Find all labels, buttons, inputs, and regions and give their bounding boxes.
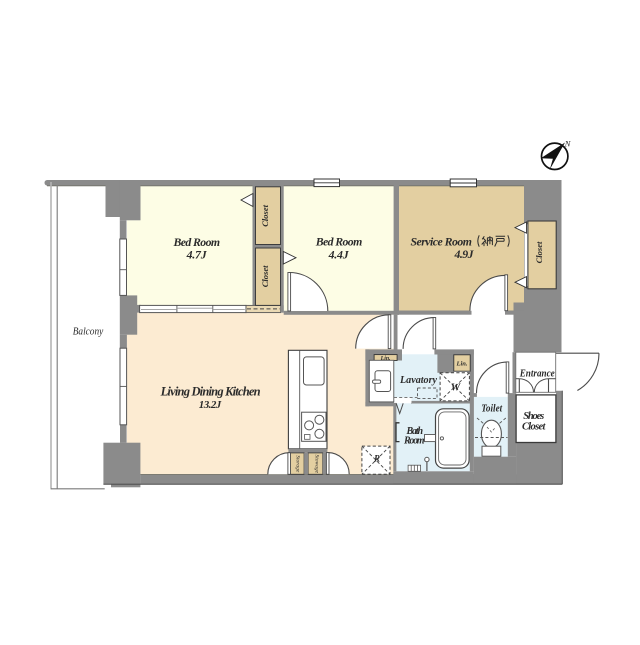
svg-text:4.4J: 4.4J <box>328 247 350 261</box>
svg-text:4.7J: 4.7J <box>186 248 208 262</box>
svg-text:R: R <box>373 454 380 464</box>
svg-text:Closet: Closet <box>260 204 270 226</box>
svg-text:4.9J: 4.9J <box>454 247 475 261</box>
svg-text:Room: Room <box>403 436 425 447</box>
svg-text:Closet: Closet <box>522 421 547 432</box>
svg-text:Lavatory: Lavatory <box>399 375 437 386</box>
svg-text:W: W <box>451 382 461 393</box>
svg-text:Closet: Closet <box>260 265 270 287</box>
svg-text:Entrance: Entrance <box>519 368 555 379</box>
svg-text:Stowage: Stowage <box>313 454 319 473</box>
svg-text:13.2J: 13.2J <box>199 399 222 411</box>
svg-text:Toilet: Toilet <box>481 403 503 414</box>
svg-text:Lin.: Lin. <box>455 360 467 367</box>
svg-text:Balcony: Balcony <box>73 326 104 337</box>
svg-text:Lin.: Lin. <box>380 356 391 362</box>
svg-text:Closet: Closet <box>534 241 544 263</box>
svg-text:Storage: Storage <box>295 455 301 473</box>
svg-text:Living Dining Kitchen: Living Dining Kitchen <box>160 385 261 399</box>
